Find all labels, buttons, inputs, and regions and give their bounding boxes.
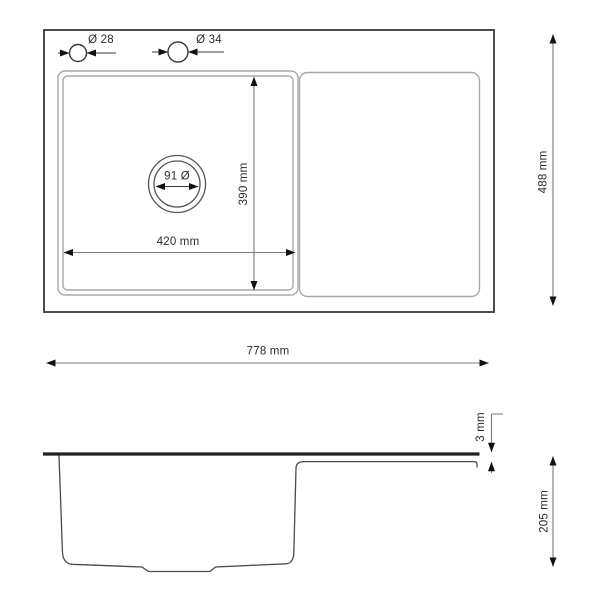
dim-overall-depth: 488 mm (538, 35, 554, 306)
dim-basin-depth-label: 390 mm (238, 163, 250, 206)
dim-overall-width-label: 778 mm (247, 346, 290, 358)
top-view: Ø 28 Ø 34 91 Ø 390 mm 420 mm (44, 30, 553, 363)
faucet-hole-large-label: Ø 34 (196, 34, 222, 46)
bowl-profile-path (59, 456, 477, 572)
dim-rim-thickness-label: 3 mm (475, 412, 487, 442)
dim-bowl-depth-label: 205 mm (539, 490, 551, 533)
dim-overall-depth-label: 488 mm (538, 151, 550, 194)
dim-overall-width: 778 mm (47, 346, 489, 364)
dim-bowl-depth: 205 mm (539, 457, 554, 567)
faucet-hole-small-circle (70, 45, 87, 62)
drawing-canvas: Ø 28 Ø 34 91 Ø 390 mm 420 mm (0, 0, 600, 600)
faucet-hole-large-circle (168, 42, 188, 62)
dim-basin-width-label: 420 mm (157, 236, 200, 248)
drain: 91 Ø (149, 156, 206, 213)
sink-technical-drawing: Ø 28 Ø 34 91 Ø 390 mm 420 mm (0, 0, 600, 600)
side-view: 3 mm 205 mm (43, 412, 553, 571)
drain-diameter-label: 91 Ø (164, 171, 190, 183)
drain-circle-outer (149, 156, 206, 213)
faucet-hole-small-label: Ø 28 (88, 34, 114, 46)
dim-rim-thickness: 3 mm (475, 412, 503, 473)
